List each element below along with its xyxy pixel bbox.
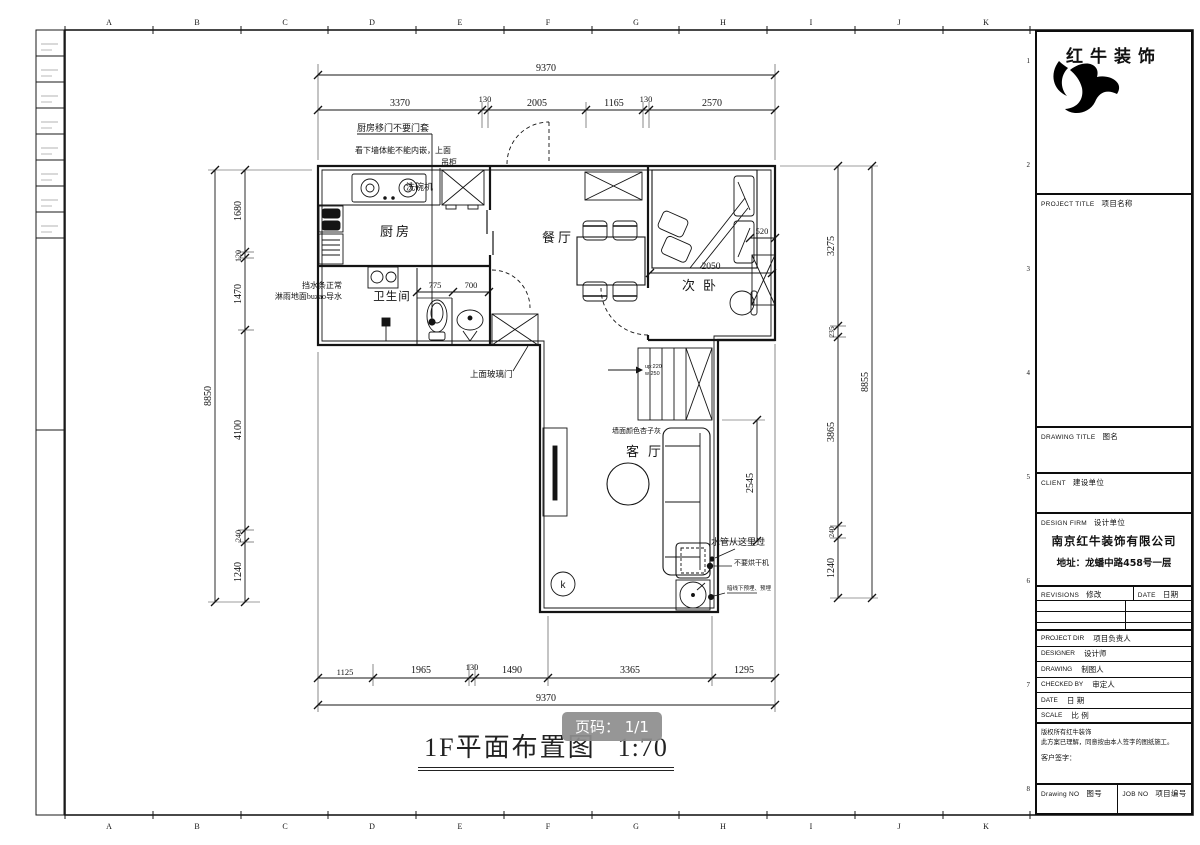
sofa [663,428,710,575]
page-indicator: 页码： 1/1 [562,712,662,741]
walls [318,122,775,612]
logo-section: 红牛装饰 [1037,32,1191,195]
col-letter: H [720,822,726,831]
signature-label: 客户签字： [1041,753,1187,764]
copyright-line1: 版权所有红牛装饰 [1041,728,1187,738]
note-conceal: 暗线下预埋、预埋 [727,584,772,592]
svg-text:5: 5 [1027,473,1031,481]
col-letter: G [633,18,639,27]
dim: 130 [466,662,479,672]
dim: 1490 [502,665,522,676]
date-col-cn: 日期 [1163,589,1179,600]
col-letter: E [458,18,463,27]
dim: 1240 [826,558,837,578]
svg-text:4: 4 [1027,369,1031,377]
note-wall-color: 墙面颜色杏子灰 [612,426,661,435]
svg-text:2: 2 [1027,161,1031,169]
svg-text:7: 7 [1027,681,1031,689]
project-title-section: PROJECT TITLE项目名称 [1037,195,1191,428]
note-stair-up: up:220 [645,364,662,370]
dim: 3865 [826,422,837,442]
project-title-cn: 项目名称 [1102,198,1133,209]
drawing-row: DRAWING制图人 [1037,662,1191,678]
note-dishwasher: 洗碗机 [406,181,433,192]
dim: 1165 [604,98,624,109]
project-dir-row: PROJECT DIR项目负责人 [1037,631,1191,647]
firm-name: 南京红牛装饰有限公司 [1037,533,1191,549]
col-letter: B [194,18,199,27]
toilet [427,300,447,332]
dining-table [577,237,645,285]
col-letter: J [897,18,900,27]
corridor-box [492,314,538,345]
frame-row-numbers: 1 2 3 4 5 6 7 8 [1027,57,1031,793]
dim: 235 [827,326,836,338]
drawing-title-cn: 图名 [1102,431,1118,442]
room-kitchen: 厨房 [380,224,412,239]
drawing-no-label: Drawing NO [1041,791,1079,798]
date-col-label: DATE [1138,592,1156,599]
number-section: Drawing NO图号 JOB NO项目编号 [1037,785,1191,813]
job-no-label: JOB NO [1122,791,1148,798]
chair [730,291,754,315]
drawing-no-cn: 图号 [1086,788,1102,799]
dim: 4100 [233,420,244,440]
room-labels: 厨房 餐厅 次卧 卫生间 客厅 [373,224,724,459]
rednew-logo-icon [1037,58,1129,118]
col-letter: D [369,822,375,831]
dim: 3365 [620,665,640,676]
svg-text:6: 6 [1027,577,1031,585]
col-letter: I [810,18,813,27]
dim: 700 [465,280,478,290]
col-letter: H [720,18,726,27]
dim: 130 [479,94,492,104]
col-letter: K [983,18,989,27]
note-no-dryer: 不要烘干机 [734,558,769,567]
col-letter: E [458,822,463,831]
dim-left-total: 8850 [203,386,214,406]
drawing-title-label: DRAWING TITLE [1041,434,1095,441]
col-letter: C [282,18,287,27]
note-shower-floor: 淋雨地面buzao导水 [275,291,342,301]
dim: 2050 [702,262,721,272]
dim: 240 [234,530,243,542]
bedroom-furniture [652,170,775,315]
frame-grid [36,26,1193,819]
copyright-line2: 此方案已理解，同意按由本人签字的图纸施工。 [1041,738,1187,748]
coffee-table [607,463,649,505]
k-label: k [561,580,567,591]
revisions-label: REVISIONS [1041,592,1079,599]
shower-symbol [382,318,390,326]
bed [652,170,757,268]
dim: 1125 [337,667,354,677]
room-bedroom: 次卧 [682,278,724,293]
dimension-labels: 9370 3370 130 2005 1165 130 2570 1125 19… [203,63,871,704]
dim-bottom-total: 9370 [536,693,556,704]
dim: 1680 [233,201,244,221]
copyright-section: 版权所有红牛装饰 此方案已理解，同意按由本人签字的图纸施工。 客户签字： [1037,724,1191,785]
design-firm-cn: 设计单位 [1094,517,1125,528]
col-letter: A [106,18,112,27]
designer-row: DESIGNER设计师 [1037,647,1191,663]
dim: 1240 [233,562,244,582]
dim: 240 [827,526,836,538]
client-label: CLIENT [1041,480,1066,487]
dim-right-total: 8855 [860,372,871,392]
col-letter: I [810,822,813,831]
annotation-notes: 厨房移门不要门套 看下墙体能不能内嵌，上面 吊柜 洗碗机 挡水条正常 淋雨地面b… [275,122,772,600]
svg-text:8: 8 [1027,785,1031,793]
note-glass-door: 上面玻璃门 [470,369,513,379]
note-water-pipe: 水管从这里过 [711,536,765,547]
client-section: CLIENT建设单位 [1037,474,1191,514]
note-niche-2: 吊柜 [441,157,457,167]
note-niche-1: 看下墙体能不能内嵌，上面 [355,145,451,155]
dining-furniture [577,172,645,301]
title-block: 红牛装饰 PROJECT TITLE项目名称 DRAWING TITLE图名 C… [1035,30,1193,815]
dim: 775 [429,280,442,290]
svg-text:3: 3 [1027,265,1031,273]
dimension-lines [208,64,878,712]
room-dining: 餐厅 [542,230,574,245]
dim: 130 [640,94,653,104]
dim: 3370 [390,98,410,109]
col-letter: B [194,822,199,831]
tv [553,446,557,500]
drawing-sheet: A B C D E F G H I J K A B C D E F G H I … [0,0,1200,845]
room-bathroom: 卫生间 [373,289,411,303]
col-letter: D [369,18,375,27]
col-letter: C [282,822,287,831]
dim: 2005 [527,98,547,109]
note-stair-w: w:250 [644,371,660,377]
dim: 3275 [826,236,837,256]
project-title-label: PROJECT TITLE [1041,201,1095,208]
note-kitchen-door: 厨房移门不要门套 [357,122,429,133]
drawing-title-section: DRAWING TITLE图名 [1037,428,1191,474]
revisions-section: REVISIONS修改 DATE日期 [1037,587,1191,631]
col-letter: F [546,18,551,27]
laundry-fixtures [676,543,710,610]
col-letter: A [106,822,112,831]
client-cn: 建设单位 [1073,477,1104,488]
room-living: 客厅 [626,444,670,459]
fridge [319,234,343,264]
col-letter: G [633,822,639,831]
note-water-strip: 挡水条正常 [302,280,342,290]
dim: 2545 [745,473,756,493]
dim: 1295 [734,665,754,676]
title-underline [418,770,674,771]
dim: 120 [234,250,243,262]
dim: 1965 [411,665,431,676]
dim: 1470 [233,284,244,304]
stairs [608,348,712,420]
checked-by-row: CHECKED BY审定人 [1037,678,1191,694]
dim: 520 [756,226,769,236]
revisions-cn: 修改 [1086,589,1102,600]
dim: 2570 [702,98,722,109]
kitchen-fixtures [318,168,484,264]
col-letter: F [546,822,551,831]
job-no-cn: 项目编号 [1155,788,1186,799]
scale-row: SCALE比 例 [1037,709,1191,725]
design-firm-section: DESIGN FIRM设计单位 南京红牛装饰有限公司 地址：龙蟠中路458号一层 [1037,514,1191,587]
date-row: DATE日 期 [1037,693,1191,709]
svg-text:1: 1 [1027,57,1031,65]
dim-top-total: 9370 [536,63,556,74]
design-firm-label: DESIGN FIRM [1041,520,1087,527]
bathroom-fixtures [368,267,483,341]
firm-address: 地址：龙蟠中路458号一层 [1037,555,1191,569]
col-letter: J [897,822,900,831]
col-letter: K [983,822,989,831]
